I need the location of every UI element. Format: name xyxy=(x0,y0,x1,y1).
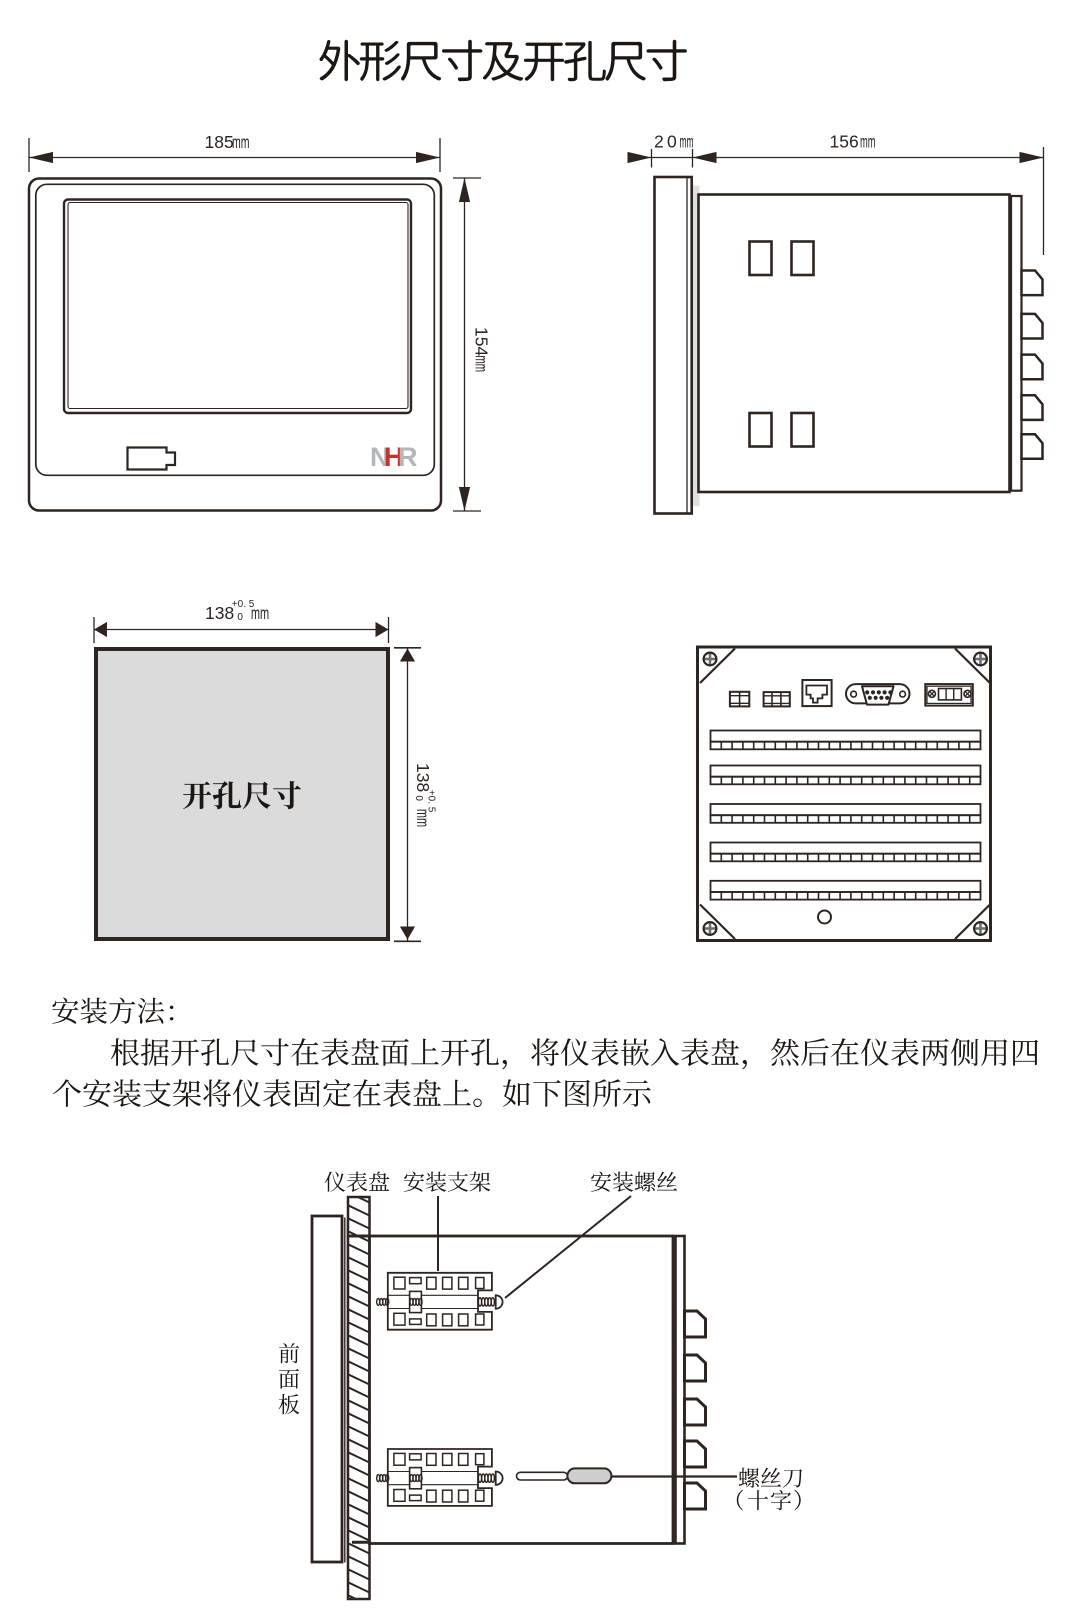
svg-text:mm: mm xyxy=(232,132,250,152)
svg-text:20: 20 xyxy=(654,132,680,152)
svg-text:mm: mm xyxy=(472,356,492,373)
svg-text:154: 154 xyxy=(472,327,492,356)
svg-text:156: 156 xyxy=(830,132,859,152)
svg-text:mm: mm xyxy=(860,132,876,152)
svg-text:mm: mm xyxy=(680,132,694,152)
svg-text:138: 138 xyxy=(413,763,433,792)
svg-text:185: 185 xyxy=(205,132,234,152)
svg-text:mm: mm xyxy=(413,809,433,827)
svg-text:0: 0 xyxy=(237,612,243,623)
svg-text:0: 0 xyxy=(413,795,424,801)
svg-text:mm: mm xyxy=(251,603,269,623)
svg-text:NHR: NHR xyxy=(370,442,417,472)
svg-text:138: 138 xyxy=(205,603,234,623)
